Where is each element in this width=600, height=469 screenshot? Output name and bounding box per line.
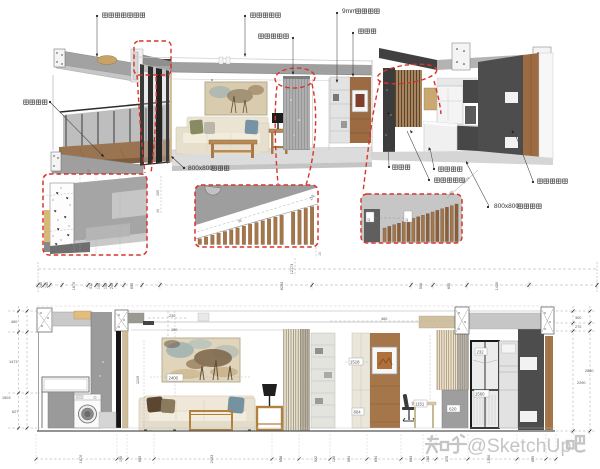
svg-text:1420: 1420	[495, 282, 499, 290]
svg-text:922: 922	[314, 456, 318, 462]
svg-text:1670: 1670	[79, 455, 83, 463]
svg-text:1219: 1219	[136, 376, 140, 384]
svg-text:190: 190	[119, 456, 123, 462]
svg-text:800x800: 800x800	[188, 165, 213, 172]
svg-text:150: 150	[426, 456, 430, 462]
svg-text:230: 230	[169, 314, 175, 318]
svg-text:620: 620	[449, 407, 457, 412]
svg-text:240: 240	[110, 283, 114, 289]
svg-text:500: 500	[419, 283, 423, 289]
svg-text:1473: 1473	[9, 360, 17, 364]
svg-text:15: 15	[318, 252, 322, 256]
svg-text:834: 834	[374, 456, 378, 462]
svg-text:300: 300	[575, 316, 581, 320]
svg-text:12: 12	[367, 218, 371, 222]
svg-text:305: 305	[156, 190, 160, 196]
svg-text:2880: 2880	[585, 369, 593, 373]
svg-text:1503: 1503	[2, 396, 10, 400]
svg-text:40: 40	[156, 209, 160, 213]
svg-text:240: 240	[45, 282, 49, 288]
svg-text:240: 240	[39, 282, 43, 288]
svg-text:9mm: 9mm	[342, 8, 356, 15]
svg-text:412: 412	[89, 283, 93, 289]
svg-text:460: 460	[11, 320, 17, 324]
svg-text:1518: 1518	[350, 360, 360, 365]
svg-text:158: 158	[97, 283, 101, 289]
svg-text:375: 375	[445, 456, 449, 462]
svg-text:804: 804	[354, 410, 362, 415]
svg-text:1151: 1151	[415, 402, 425, 407]
svg-text:650: 650	[138, 456, 142, 462]
svg-text:232: 232	[477, 350, 485, 355]
svg-text:800x800: 800x800	[494, 203, 519, 210]
svg-text:658: 658	[279, 456, 283, 462]
svg-text:12: 12	[405, 218, 409, 222]
svg-text:850: 850	[447, 283, 451, 289]
svg-text:12173: 12173	[290, 264, 294, 275]
svg-text:627: 627	[12, 410, 18, 414]
svg-text:270: 270	[575, 325, 581, 329]
svg-text:@SketchUp: @SketchUp	[467, 435, 571, 457]
svg-text:106: 106	[104, 283, 108, 289]
svg-text:8203: 8203	[280, 282, 284, 290]
svg-text:604: 604	[347, 456, 351, 462]
svg-text:603: 603	[409, 456, 413, 462]
svg-text:650: 650	[130, 283, 134, 289]
svg-text:2290: 2290	[577, 381, 585, 385]
svg-text:460: 460	[381, 317, 387, 321]
svg-text:1670: 1670	[72, 282, 76, 290]
svg-text:1560: 1560	[475, 392, 485, 397]
svg-text:2433: 2433	[210, 455, 214, 463]
svg-text:150: 150	[171, 328, 177, 332]
svg-text:2400: 2400	[169, 376, 179, 381]
svg-text:126: 126	[332, 456, 336, 462]
